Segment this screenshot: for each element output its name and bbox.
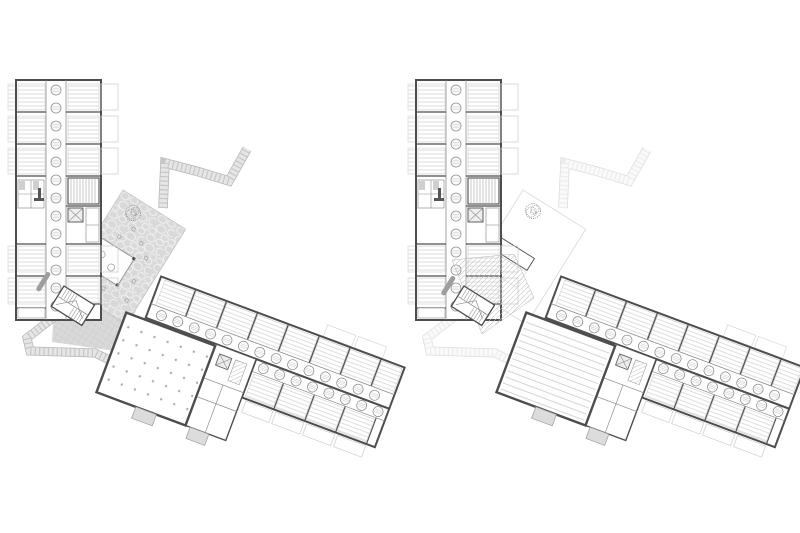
- north-wing-placement: [8, 80, 118, 320]
- drawing-sheet: [0, 0, 800, 533]
- upper-footpath-faint: [563, 149, 647, 208]
- upper-footpath: [163, 149, 247, 208]
- floor-plan-drawing: [0, 0, 800, 533]
- floor-plan-right: [408, 80, 800, 502]
- floor-plan-left: [8, 80, 409, 502]
